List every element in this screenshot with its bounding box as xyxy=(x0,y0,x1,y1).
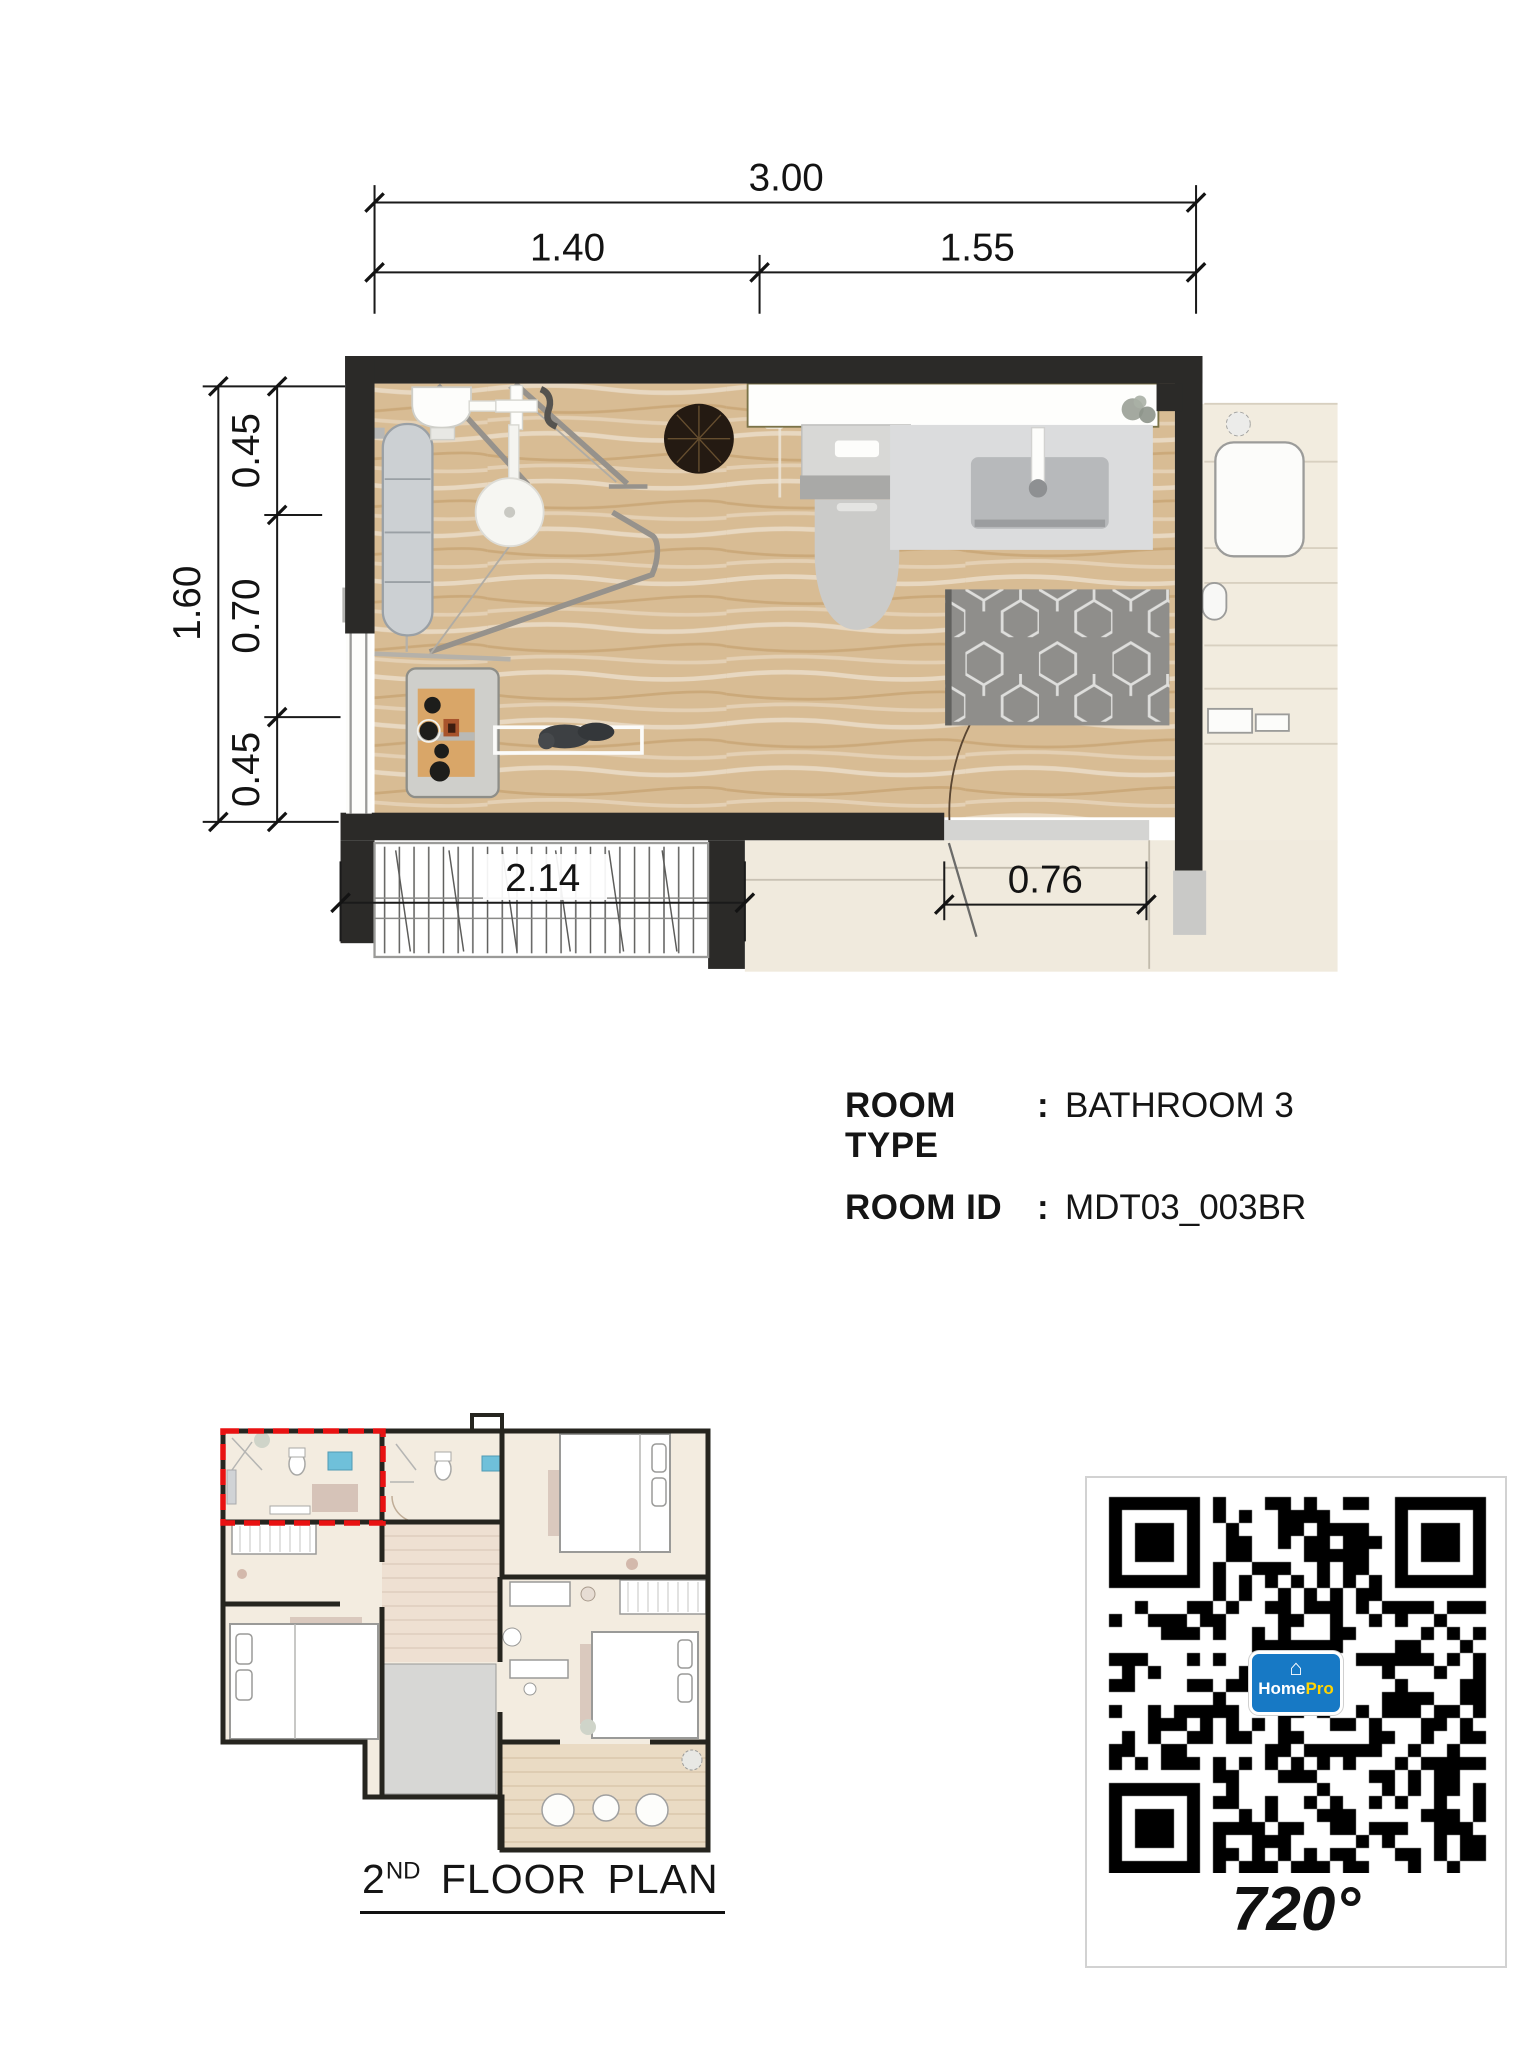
top-dimensions xyxy=(375,185,1197,314)
sink-vanity xyxy=(890,425,1153,550)
dim-top-segment-2: 1.55 xyxy=(940,226,1015,269)
dim-left-overall: 1.60 xyxy=(166,566,209,641)
dim-left-segment-1: 0.45 xyxy=(225,413,268,488)
second-floor-plan-thumbnail xyxy=(200,1412,780,1912)
room-type-value: BATHROOM 3 xyxy=(1065,1086,1294,1126)
room-id-value: MDT03_003BR xyxy=(1065,1188,1306,1228)
room-type-separator: : xyxy=(1037,1086,1065,1126)
bedroom-top-right xyxy=(548,1434,670,1570)
bathroom-floor-plan: 3.00 1.40 1.55 1.60 0.45 0.70 0.45 2.14 xyxy=(120,80,1480,1040)
dim-left-segment-3: 0.45 xyxy=(225,732,268,807)
geometric-rug xyxy=(945,589,1169,725)
homepro-logo: ⌂ HomePro xyxy=(1249,1651,1343,1715)
logo-text-home: Home xyxy=(1258,1679,1305,1698)
floor-plan-sheet: 3.00 1.40 1.55 1.60 0.45 0.70 0.45 2.14 xyxy=(0,0,1536,2048)
room-type-row: ROOM TYPE : BATHROOM 3 xyxy=(845,1086,1405,1166)
stairs xyxy=(384,1664,496,1794)
qr-caption: 720° xyxy=(1087,1874,1505,1945)
door-threshold xyxy=(944,820,1149,840)
room-id-separator: : xyxy=(1037,1188,1065,1228)
caption-number: 2 xyxy=(362,1856,386,1902)
room-type-label: ROOM TYPE xyxy=(845,1086,1037,1166)
dim-top-segment-1: 1.40 xyxy=(530,226,605,269)
shower-arm xyxy=(509,425,519,480)
room-info: ROOM TYPE : BATHROOM 3 ROOM ID : MDT03_0… xyxy=(845,1086,1405,1250)
wall-basin xyxy=(412,387,471,427)
faucet xyxy=(1032,428,1045,483)
house-icon: ⌂ xyxy=(1252,1656,1340,1680)
room-id-row: ROOM ID : MDT03_003BR xyxy=(845,1188,1405,1228)
dim-top-overall: 3.00 xyxy=(749,157,824,200)
adjacent-room xyxy=(1202,404,1337,843)
caption-rest: FLOOR PLAN xyxy=(420,1856,718,1902)
dim-door-width: 0.76 xyxy=(1008,859,1083,902)
dim-left-segment-2: 0.70 xyxy=(225,579,268,654)
toiletries-tray xyxy=(407,668,499,797)
glass-wall-strip xyxy=(346,634,372,814)
round-rug xyxy=(664,404,734,474)
dim-closet-width: 2.14 xyxy=(505,857,580,900)
counter xyxy=(748,384,1159,427)
qr-card: ⌂ HomePro 720° xyxy=(1085,1476,1507,1968)
floor-plan-caption: 2ND FLOOR PLAN xyxy=(360,1856,725,1914)
logo-text-pro: Pro xyxy=(1305,1679,1333,1698)
caption-superscript: ND xyxy=(386,1857,421,1884)
wall-end-cap xyxy=(1173,871,1206,935)
room-id-label: ROOM ID xyxy=(845,1188,1037,1228)
